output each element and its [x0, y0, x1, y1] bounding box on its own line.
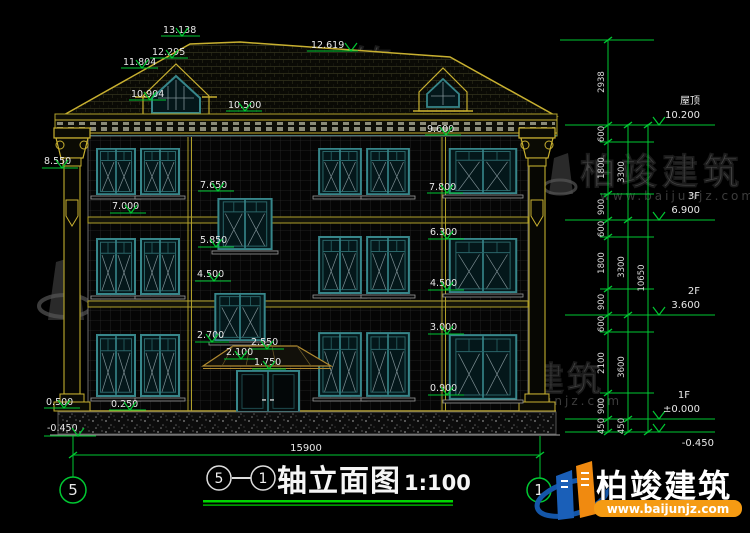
svg-text:1800: 1800 — [597, 157, 607, 179]
window — [141, 335, 179, 396]
watermark-right: 柏竣建筑 www.baijunjz.com — [544, 152, 750, 203]
watermark-logo-icon — [549, 153, 573, 194]
level-name: 1F — [678, 390, 690, 401]
title-underline-thick — [203, 500, 453, 503]
svg-text:6.300: 6.300 — [430, 227, 457, 238]
window — [97, 335, 135, 396]
mark: 13.138 — [161, 25, 200, 36]
brand-logo: 柏竣建筑 www.baijunjz.com — [533, 461, 742, 523]
window — [367, 333, 409, 396]
svg-text:450: 450 — [617, 418, 627, 434]
svg-text:600: 600 — [597, 316, 607, 332]
title-scale: 1:100 — [404, 471, 471, 495]
cad-elevation-canvas: 柏竣建筑 www.baijunjz.com 柏竣建筑 www.baijunjz.… — [0, 0, 750, 533]
level-markers: 屋顶 10.200 3F 6.900 2F 3.600 1F ±0.000 -0… — [653, 95, 714, 449]
entrance-door — [237, 371, 299, 412]
mark: 10.500 — [226, 100, 262, 111]
title-underline-thin — [203, 505, 453, 506]
mark: 11.804 — [121, 57, 158, 68]
svg-text:600: 600 — [597, 126, 607, 142]
level-name: 屋顶 — [680, 95, 700, 107]
svg-text:3300: 3300 — [617, 161, 627, 183]
level-value: 3.600 — [671, 300, 700, 311]
svg-text:0.900: 0.900 — [430, 383, 457, 394]
logo-building-blue-icon — [556, 470, 574, 520]
window — [367, 237, 409, 293]
svg-text:3600: 3600 — [617, 356, 627, 378]
main-roof — [62, 42, 556, 116]
window — [319, 149, 361, 194]
elevation-drawing: 柏竣建筑 www.baijunjz.com 柏竣建筑 www.baijunjz.… — [0, 0, 750, 533]
svg-text:1800: 1800 — [597, 252, 607, 274]
logo-brand-text: 柏竣建筑 — [596, 467, 732, 505]
window — [450, 149, 517, 193]
building-elevation — [50, 42, 560, 435]
eave-cornice — [55, 114, 557, 136]
mark: 2.700 — [195, 330, 229, 342]
window — [450, 335, 517, 399]
window — [97, 239, 135, 294]
svg-text:900: 900 — [597, 199, 607, 215]
svg-text:3300: 3300 — [617, 256, 627, 278]
mark: 2.100 — [224, 347, 257, 359]
svg-text:10.904: 10.904 — [131, 89, 164, 100]
svg-text:11.804: 11.804 — [123, 57, 156, 68]
window — [141, 149, 179, 194]
mark: 1.750 — [252, 357, 286, 369]
level-name: 3F — [688, 191, 700, 202]
level-name: 2F — [688, 286, 700, 297]
logo-building-orange-icon — [576, 461, 596, 518]
logo-url-text: www.baijunjz.com — [607, 502, 730, 516]
svg-text:3.000: 3.000 — [430, 322, 457, 333]
mark: 10.904 — [129, 89, 166, 100]
window — [141, 239, 179, 294]
level-value: ±0.000 — [663, 404, 700, 415]
svg-text:900: 900 — [597, 398, 607, 414]
dimension-numbers: 2938 600 1800 900 600 1800 900 600 2100 … — [597, 71, 647, 434]
svg-text:2938: 2938 — [597, 71, 607, 93]
level-value: 10.200 — [665, 110, 700, 121]
drawing-title: 5 1 轴立面图 1:100 — [203, 464, 471, 506]
floor-band-3f — [88, 217, 528, 223]
level-value: -0.450 — [682, 438, 714, 449]
title-text: 轴立面图 — [277, 464, 401, 499]
svg-text:4.500: 4.500 — [430, 278, 457, 289]
svg-text:13.138: 13.138 — [163, 25, 196, 36]
svg-text:2100: 2100 — [597, 352, 607, 374]
svg-text:10650: 10650 — [637, 264, 647, 291]
level-value: 6.900 — [671, 205, 700, 216]
svg-text:4.500: 4.500 — [197, 269, 224, 280]
svg-text:600: 600 — [597, 221, 607, 237]
window — [450, 239, 517, 292]
window — [97, 149, 135, 194]
watermark-url-text: www.baijunjz.com — [600, 189, 750, 203]
title-axis-b: 1 — [259, 471, 268, 487]
overall-width-dimension: 15900 — [290, 443, 322, 454]
floor-band-2f — [88, 301, 528, 307]
svg-text:450: 450 — [597, 418, 607, 434]
window — [319, 237, 361, 293]
axis-bubble-label: 5 — [68, 481, 78, 499]
svg-text:900: 900 — [597, 294, 607, 310]
svg-text:12.619: 12.619 — [311, 40, 344, 51]
window — [367, 149, 409, 194]
plinth — [58, 412, 556, 434]
title-axis-a: 5 — [215, 471, 224, 487]
svg-text:10.500: 10.500 — [228, 100, 261, 111]
